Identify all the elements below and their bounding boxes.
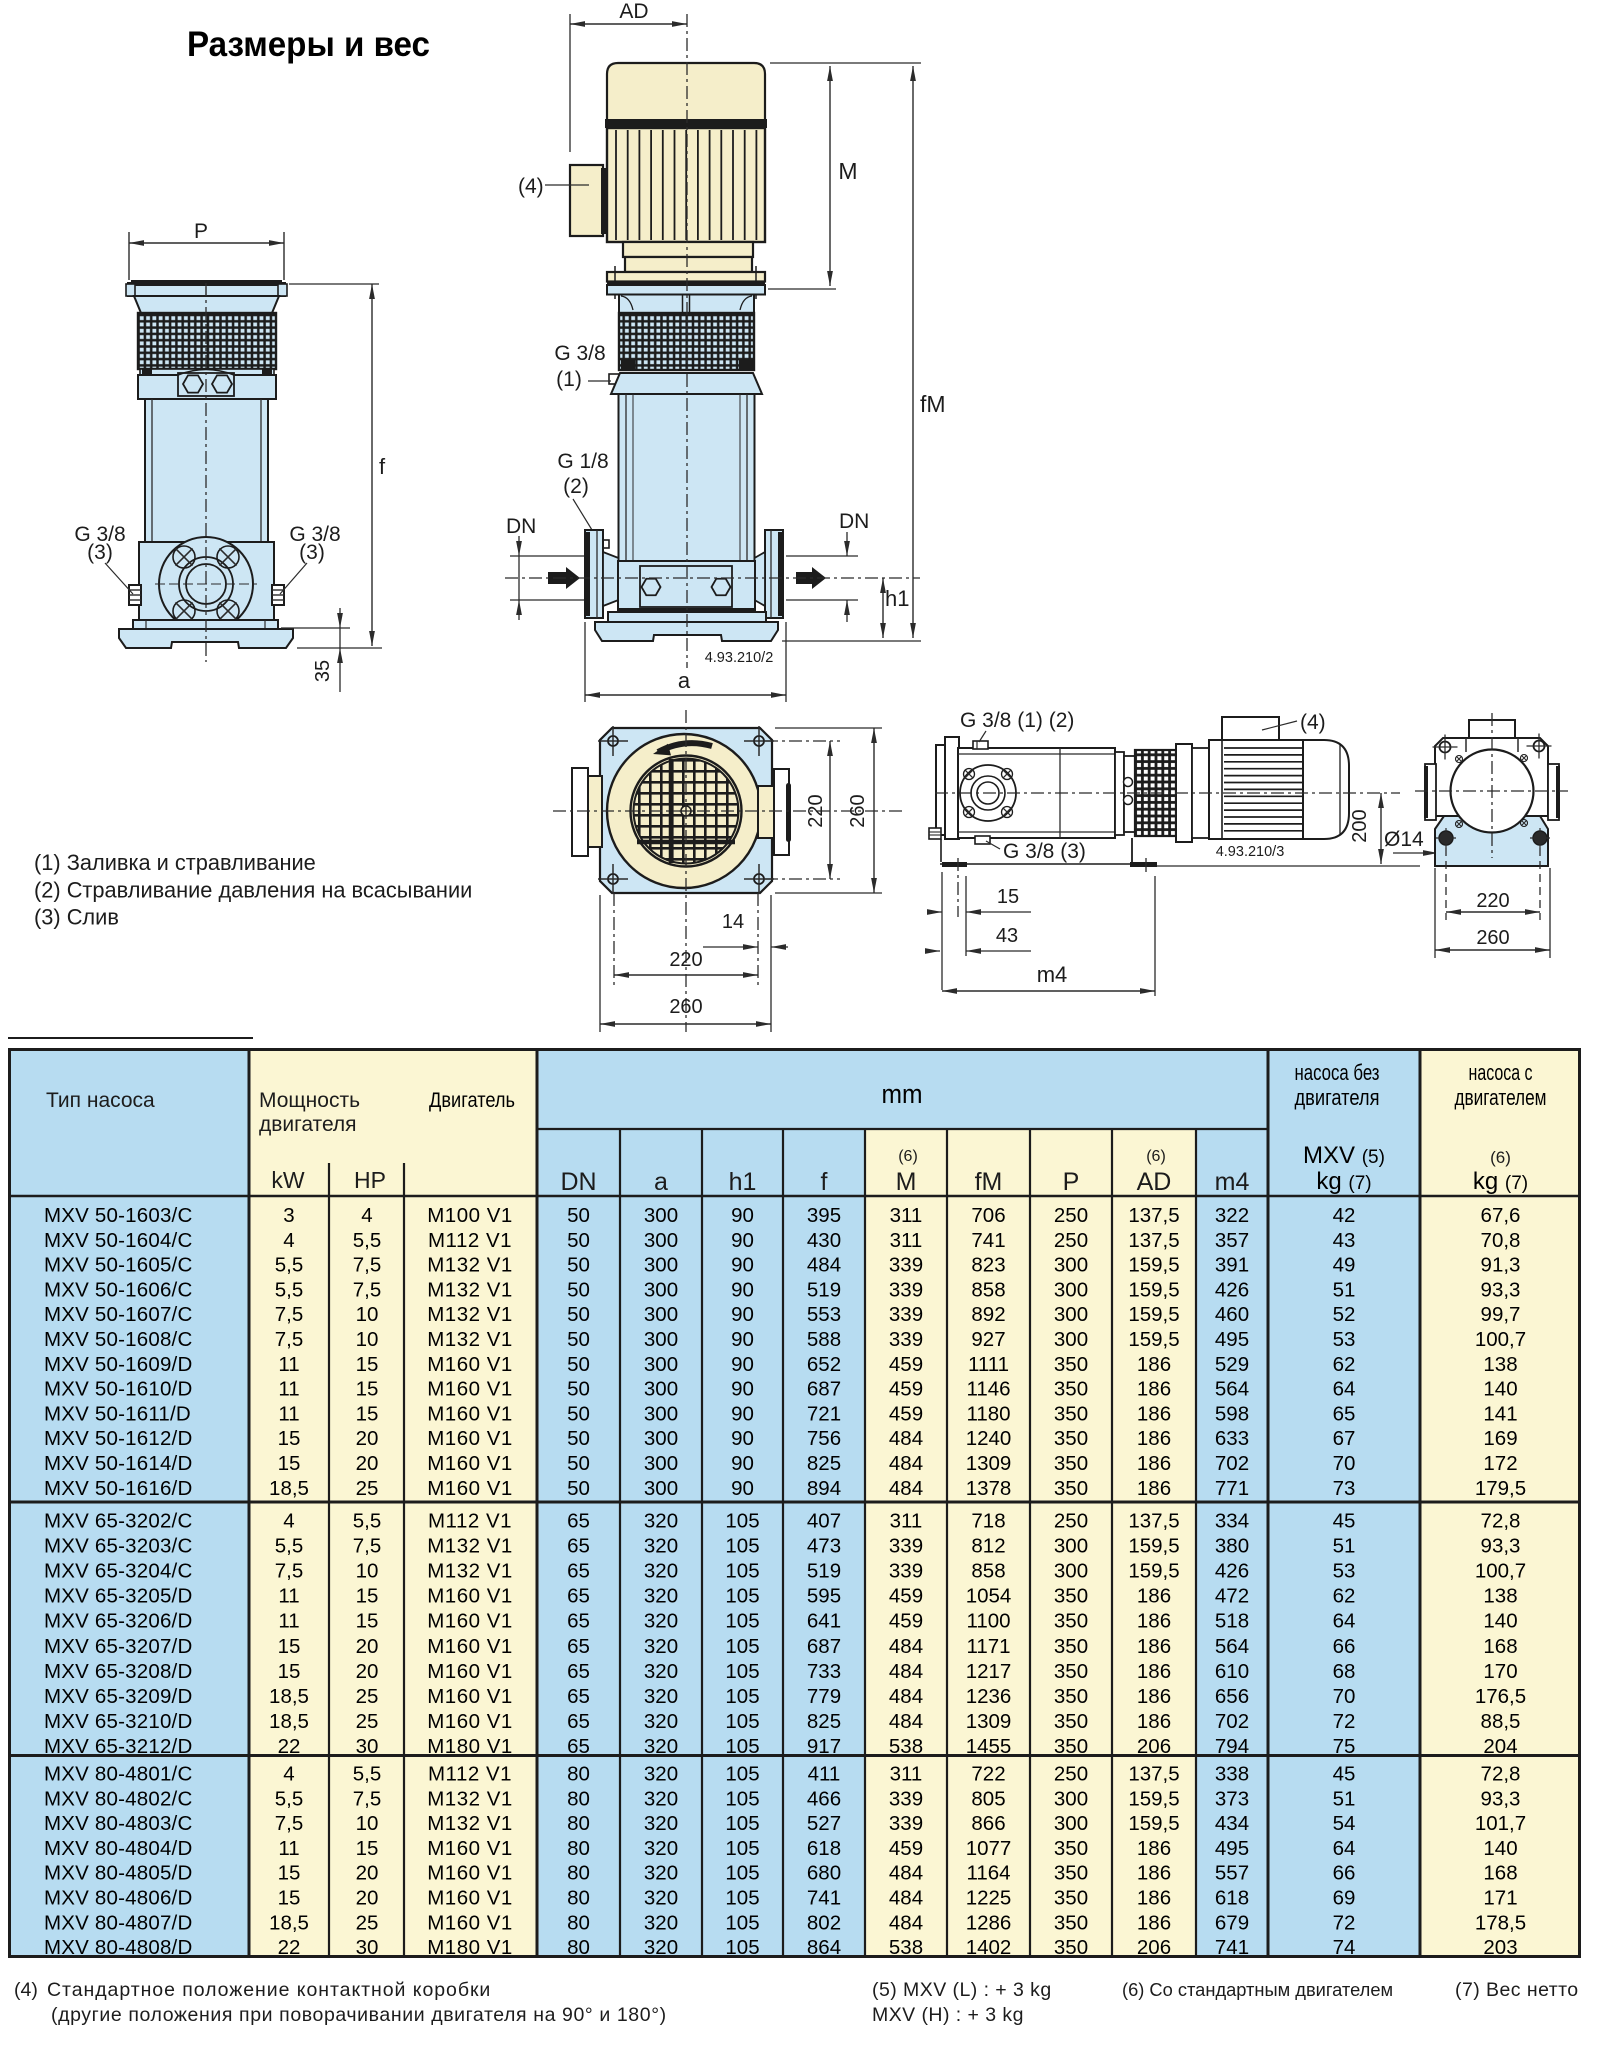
svg-text:7,5: 7,5 <box>353 1278 382 1301</box>
svg-text:M160 V1: M160 V1 <box>427 1427 513 1450</box>
svg-text:m4: m4 <box>1037 962 1068 987</box>
svg-text:7,5: 7,5 <box>275 1328 304 1351</box>
svg-text:20: 20 <box>356 1862 379 1885</box>
svg-text:67,6: 67,6 <box>1481 1204 1521 1227</box>
svg-text:50: 50 <box>567 1303 590 1326</box>
svg-text:(другие положения при поворачи: (другие положения при поворачивании двиг… <box>51 2004 667 2026</box>
svg-text:300: 300 <box>644 1278 678 1301</box>
svg-text:260: 260 <box>669 996 702 1018</box>
svg-text:65: 65 <box>567 1560 590 1583</box>
svg-text:320: 320 <box>644 1862 678 1885</box>
svg-text:M160 V1: M160 V1 <box>427 1911 513 1934</box>
svg-text:484: 484 <box>889 1635 923 1658</box>
svg-text:595: 595 <box>807 1585 841 1608</box>
svg-text:687: 687 <box>807 1635 841 1658</box>
svg-text:300: 300 <box>644 1402 678 1425</box>
svg-text:186: 186 <box>1137 1635 1171 1658</box>
svg-text:(5) MXV (L) : + 3 kg: (5) MXV (L) : + 3 kg <box>872 1979 1052 2001</box>
svg-text:519: 519 <box>807 1560 841 1583</box>
svg-text:459: 459 <box>889 1837 923 1860</box>
svg-text:1309: 1309 <box>966 1710 1012 1733</box>
svg-text:250: 250 <box>1054 1763 1088 1786</box>
svg-text:395: 395 <box>807 1204 841 1227</box>
svg-text:426: 426 <box>1215 1278 1249 1301</box>
svg-text:339: 339 <box>889 1812 923 1835</box>
svg-text:300: 300 <box>1054 1328 1088 1351</box>
svg-text:91,3: 91,3 <box>1481 1254 1521 1277</box>
svg-text:15: 15 <box>997 886 1019 908</box>
svg-text:10: 10 <box>356 1328 379 1351</box>
svg-text:320: 320 <box>644 1610 678 1633</box>
svg-text:MXV 80-4805/D: MXV 80-4805/D <box>44 1862 192 1885</box>
svg-text:(2): (2) <box>563 475 589 498</box>
svg-text:186: 186 <box>1137 1862 1171 1885</box>
svg-text:MXV 65-3207/D: MXV 65-3207/D <box>44 1635 192 1658</box>
svg-text:MXV 80-4802/C: MXV 80-4802/C <box>44 1787 192 1810</box>
svg-text:MXV 50-1611/D: MXV 50-1611/D <box>44 1402 191 1425</box>
svg-text:460: 460 <box>1215 1303 1249 1326</box>
svg-text:350: 350 <box>1054 1585 1088 1608</box>
svg-text:65: 65 <box>567 1535 590 1558</box>
svg-text:MXV 65-3205/D: MXV 65-3205/D <box>44 1585 192 1608</box>
svg-text:65: 65 <box>567 1610 590 1633</box>
svg-text:373: 373 <box>1215 1787 1249 1810</box>
svg-text:MXV 65-3202/C: MXV 65-3202/C <box>44 1510 192 1533</box>
svg-text:M132 V1: M132 V1 <box>427 1787 513 1810</box>
svg-text:300: 300 <box>644 1378 678 1401</box>
svg-text:двигателя: двигателя <box>1295 1085 1380 1110</box>
svg-text:339: 339 <box>889 1303 923 1326</box>
svg-text:339: 339 <box>889 1254 923 1277</box>
svg-text:M112 V1: M112 V1 <box>428 1229 512 1252</box>
svg-text:656: 656 <box>1215 1685 1249 1708</box>
svg-text:20: 20 <box>356 1427 379 1450</box>
svg-text:90: 90 <box>731 1477 754 1500</box>
svg-text:300: 300 <box>1054 1560 1088 1583</box>
svg-text:170: 170 <box>1483 1660 1517 1683</box>
svg-text:(3): (3) <box>87 541 113 564</box>
svg-text:45: 45 <box>1333 1763 1356 1786</box>
svg-text:825: 825 <box>807 1710 841 1733</box>
svg-text:858: 858 <box>971 1278 1005 1301</box>
svg-text:176,5: 176,5 <box>1475 1685 1526 1708</box>
svg-text:5,5: 5,5 <box>353 1510 382 1533</box>
svg-text:MXV 65-3210/D: MXV 65-3210/D <box>44 1710 192 1733</box>
svg-text:866: 866 <box>971 1812 1005 1835</box>
svg-text:Стандартное положение контактн: Стандартное положение контактной коробки <box>47 1979 491 2001</box>
svg-text:186: 186 <box>1137 1887 1171 1910</box>
svg-text:M: M <box>838 158 857 184</box>
svg-text:105: 105 <box>725 1510 759 1533</box>
svg-text:(3): (3) <box>299 541 325 564</box>
svg-text:72,8: 72,8 <box>1481 1763 1521 1786</box>
svg-text:598: 598 <box>1215 1402 1249 1425</box>
svg-text:434: 434 <box>1215 1812 1249 1835</box>
svg-text:M160 V1: M160 V1 <box>427 1610 513 1633</box>
svg-text:67: 67 <box>1333 1427 1356 1450</box>
svg-text:1309: 1309 <box>966 1452 1012 1475</box>
svg-text:MXV 50-1603/C: MXV 50-1603/C <box>44 1204 192 1227</box>
svg-text:137,5: 137,5 <box>1128 1229 1179 1252</box>
svg-text:350: 350 <box>1054 1710 1088 1733</box>
svg-text:459: 459 <box>889 1378 923 1401</box>
svg-text:20: 20 <box>356 1635 379 1658</box>
svg-text:15: 15 <box>356 1837 379 1860</box>
svg-text:двигателя: двигателя <box>259 1113 357 1136</box>
svg-text:802: 802 <box>807 1911 841 1934</box>
svg-text:338: 338 <box>1215 1763 1249 1786</box>
svg-text:(6): (6) <box>898 1148 918 1165</box>
svg-text:300: 300 <box>644 1427 678 1450</box>
svg-text:1146: 1146 <box>966 1378 1010 1401</box>
svg-text:50: 50 <box>567 1229 590 1252</box>
svg-text:472: 472 <box>1215 1585 1249 1608</box>
svg-text:a: a <box>654 1168 668 1196</box>
svg-text:MXV 50-1608/C: MXV 50-1608/C <box>44 1328 192 1351</box>
svg-text:(2) Стравливание давления на в: (2) Стравливание давления на всасывании <box>34 877 472 902</box>
svg-text:насоса с: насоса с <box>1469 1060 1533 1085</box>
svg-text:51: 51 <box>1333 1535 1356 1558</box>
svg-text:MXV 50-1605/C: MXV 50-1605/C <box>44 1254 192 1277</box>
svg-text:339: 339 <box>889 1535 923 1558</box>
svg-text:466: 466 <box>807 1787 841 1810</box>
svg-text:300: 300 <box>644 1303 678 1326</box>
svg-text:15: 15 <box>278 1427 301 1450</box>
svg-text:101,7: 101,7 <box>1475 1812 1526 1835</box>
svg-text:(4): (4) <box>14 1979 38 2001</box>
svg-text:90: 90 <box>731 1204 754 1227</box>
svg-text:7,5: 7,5 <box>353 1535 382 1558</box>
svg-text:M160 V1: M160 V1 <box>427 1887 513 1910</box>
svg-text:823: 823 <box>971 1254 1005 1277</box>
svg-text:618: 618 <box>807 1837 841 1860</box>
svg-text:18,5: 18,5 <box>269 1710 309 1733</box>
svg-text:484: 484 <box>889 1427 923 1450</box>
svg-text:186: 186 <box>1137 1660 1171 1683</box>
svg-text:320: 320 <box>644 1710 678 1733</box>
svg-text:52: 52 <box>1333 1303 1356 1326</box>
svg-text:220: 220 <box>805 794 827 827</box>
svg-text:80: 80 <box>567 1862 590 1885</box>
svg-text:159,5: 159,5 <box>1128 1278 1179 1301</box>
svg-text:fM: fM <box>920 391 946 417</box>
svg-text:M160 V1: M160 V1 <box>427 1585 513 1608</box>
svg-text:G 1/8: G 1/8 <box>557 450 608 473</box>
svg-text:138: 138 <box>1483 1585 1517 1608</box>
svg-text:50: 50 <box>567 1402 590 1425</box>
svg-text:105: 105 <box>725 1585 759 1608</box>
svg-text:721: 721 <box>807 1402 841 1425</box>
svg-text:300: 300 <box>644 1477 678 1500</box>
svg-text:11: 11 <box>278 1585 299 1608</box>
svg-text:90: 90 <box>731 1353 754 1376</box>
svg-text:MXV 80-4803/C: MXV 80-4803/C <box>44 1812 192 1835</box>
svg-text:350: 350 <box>1054 1452 1088 1475</box>
svg-text:722: 722 <box>971 1763 1005 1786</box>
svg-text:805: 805 <box>971 1787 1005 1810</box>
svg-text:339: 339 <box>889 1328 923 1351</box>
svg-text:812: 812 <box>971 1535 1005 1558</box>
svg-text:1054: 1054 <box>966 1585 1012 1608</box>
svg-text:M132 V1: M132 V1 <box>427 1254 513 1277</box>
svg-text:459: 459 <box>889 1610 923 1633</box>
svg-text:66: 66 <box>1333 1635 1356 1658</box>
svg-text:43: 43 <box>996 925 1018 947</box>
svg-text:250: 250 <box>1054 1229 1088 1252</box>
svg-text:7,5: 7,5 <box>275 1812 304 1835</box>
svg-text:350: 350 <box>1054 1837 1088 1860</box>
svg-text:1100: 1100 <box>966 1610 1010 1633</box>
svg-text:G 3/8 (1) (2): G 3/8 (1) (2) <box>960 709 1074 732</box>
svg-text:20: 20 <box>356 1452 379 1475</box>
svg-text:(6) Со стандартным двигателем: (6) Со стандартным двигателем <box>1122 1979 1393 2000</box>
svg-text:756: 756 <box>807 1427 841 1450</box>
svg-text:300: 300 <box>644 1353 678 1376</box>
svg-text:484: 484 <box>889 1862 923 1885</box>
svg-text:25: 25 <box>356 1477 379 1500</box>
svg-text:Тип насоса: Тип насоса <box>46 1089 155 1112</box>
svg-text:339: 339 <box>889 1278 923 1301</box>
svg-text:320: 320 <box>644 1560 678 1583</box>
svg-text:h1: h1 <box>885 586 909 611</box>
svg-text:186: 186 <box>1137 1452 1171 1475</box>
svg-text:300: 300 <box>1054 1278 1088 1301</box>
svg-text:186: 186 <box>1137 1402 1171 1425</box>
svg-text:171: 171 <box>1483 1887 1517 1910</box>
svg-text:65: 65 <box>567 1710 590 1733</box>
svg-text:66: 66 <box>1333 1862 1356 1885</box>
svg-text:70,8: 70,8 <box>1481 1229 1521 1252</box>
svg-text:484: 484 <box>889 1452 923 1475</box>
svg-text:MXV 50-1616/D: MXV 50-1616/D <box>44 1477 192 1500</box>
svg-text:M160 V1: M160 V1 <box>427 1635 513 1658</box>
svg-text:105: 105 <box>725 1887 759 1910</box>
svg-text:M132 V1: M132 V1 <box>427 1560 513 1583</box>
svg-text:484: 484 <box>889 1710 923 1733</box>
svg-text:426: 426 <box>1215 1560 1249 1583</box>
svg-text:350: 350 <box>1054 1635 1088 1658</box>
svg-text:350: 350 <box>1054 1685 1088 1708</box>
svg-text:168: 168 <box>1483 1635 1517 1658</box>
svg-text:MXV 50-1612/D: MXV 50-1612/D <box>44 1427 192 1450</box>
svg-text:702: 702 <box>1215 1452 1249 1475</box>
svg-text:168: 168 <box>1483 1862 1517 1885</box>
svg-text:339: 339 <box>889 1787 923 1810</box>
svg-text:186: 186 <box>1137 1710 1171 1733</box>
svg-text:300: 300 <box>644 1254 678 1277</box>
svg-text:484: 484 <box>889 1887 923 1910</box>
svg-text:15: 15 <box>278 1660 301 1683</box>
svg-text:18,5: 18,5 <box>269 1685 309 1708</box>
svg-text:50: 50 <box>567 1254 590 1277</box>
svg-text:105: 105 <box>725 1535 759 1558</box>
svg-text:4: 4 <box>361 1204 372 1227</box>
svg-text:80: 80 <box>567 1911 590 1934</box>
svg-text:5,5: 5,5 <box>353 1229 382 1252</box>
svg-text:300: 300 <box>644 1328 678 1351</box>
svg-text:391: 391 <box>1215 1254 1249 1277</box>
svg-text:186: 186 <box>1137 1911 1171 1934</box>
svg-text:Двигатель: Двигатель <box>429 1089 515 1112</box>
svg-text:679: 679 <box>1215 1911 1249 1934</box>
svg-text:50: 50 <box>567 1204 590 1227</box>
svg-text:(1) Заливка и стравливание: (1) Заливка и стравливание <box>34 850 316 875</box>
svg-text:137,5: 137,5 <box>1128 1763 1179 1786</box>
svg-text:159,5: 159,5 <box>1128 1303 1179 1326</box>
svg-text:MXV 50-1606/C: MXV 50-1606/C <box>44 1278 192 1301</box>
svg-text:350: 350 <box>1054 1887 1088 1910</box>
svg-text:339: 339 <box>889 1560 923 1583</box>
svg-text:14: 14 <box>722 911 744 933</box>
svg-text:(4): (4) <box>1300 711 1326 734</box>
svg-text:741: 741 <box>807 1887 841 1910</box>
svg-text:DN: DN <box>560 1168 596 1196</box>
svg-text:105: 105 <box>725 1685 759 1708</box>
svg-text:насоса без: насоса без <box>1295 1060 1380 1085</box>
svg-text:186: 186 <box>1137 1427 1171 1450</box>
svg-text:105: 105 <box>725 1837 759 1860</box>
svg-text:159,5: 159,5 <box>1128 1787 1179 1810</box>
svg-text:1286: 1286 <box>966 1911 1012 1934</box>
svg-text:220: 220 <box>669 949 702 971</box>
svg-text:172: 172 <box>1483 1452 1517 1475</box>
svg-text:557: 557 <box>1215 1862 1249 1885</box>
svg-text:892: 892 <box>971 1303 1005 1326</box>
svg-text:65: 65 <box>567 1660 590 1683</box>
svg-text:495: 495 <box>1215 1837 1249 1860</box>
svg-text:MXV 80-4807/D: MXV 80-4807/D <box>44 1911 192 1934</box>
svg-text:45: 45 <box>1333 1510 1356 1533</box>
svg-text:10: 10 <box>356 1303 379 1326</box>
svg-text:5,5: 5,5 <box>275 1254 304 1277</box>
svg-text:P: P <box>1063 1168 1080 1196</box>
svg-text:15: 15 <box>278 1452 301 1475</box>
svg-text:MXV 65-3206/D: MXV 65-3206/D <box>44 1610 192 1633</box>
svg-text:18,5: 18,5 <box>269 1911 309 1934</box>
svg-text:72,8: 72,8 <box>1481 1510 1521 1533</box>
svg-text:10: 10 <box>356 1812 379 1835</box>
svg-text:M160 V1: M160 V1 <box>427 1452 513 1475</box>
svg-text:M100 V1: M100 V1 <box>427 1204 513 1227</box>
svg-text:43: 43 <box>1333 1229 1356 1252</box>
svg-text:1217: 1217 <box>966 1660 1012 1683</box>
svg-text:741: 741 <box>971 1229 1005 1252</box>
svg-text:186: 186 <box>1137 1378 1171 1401</box>
svg-text:(6): (6) <box>1490 1148 1511 1167</box>
svg-text:687: 687 <box>807 1378 841 1401</box>
svg-text:1111: 1111 <box>968 1353 1009 1376</box>
svg-text:64: 64 <box>1333 1378 1356 1401</box>
svg-text:25: 25 <box>356 1685 379 1708</box>
svg-text:72: 72 <box>1333 1911 1356 1934</box>
svg-text:1180: 1180 <box>966 1402 1010 1425</box>
svg-text:50: 50 <box>567 1378 590 1401</box>
svg-text:62: 62 <box>1333 1353 1356 1376</box>
svg-text:320: 320 <box>644 1660 678 1683</box>
svg-text:484: 484 <box>889 1660 923 1683</box>
svg-text:93,3: 93,3 <box>1481 1787 1521 1810</box>
svg-text:564: 564 <box>1215 1378 1249 1401</box>
svg-text:320: 320 <box>644 1812 678 1835</box>
svg-text:718: 718 <box>971 1510 1005 1533</box>
svg-text:P: P <box>194 220 208 243</box>
svg-text:5,5: 5,5 <box>275 1278 304 1301</box>
svg-text:80: 80 <box>567 1887 590 1910</box>
svg-text:(1): (1) <box>556 368 582 391</box>
svg-text:68: 68 <box>1333 1660 1356 1683</box>
svg-text:65: 65 <box>1333 1402 1356 1425</box>
svg-text:7,5: 7,5 <box>353 1254 382 1277</box>
svg-text:186: 186 <box>1137 1610 1171 1633</box>
svg-text:42: 42 <box>1333 1204 1356 1227</box>
svg-text:AD: AD <box>1137 1168 1172 1196</box>
svg-text:357: 357 <box>1215 1229 1249 1252</box>
svg-text:65: 65 <box>567 1685 590 1708</box>
svg-text:140: 140 <box>1483 1837 1517 1860</box>
svg-text:M132 V1: M132 V1 <box>427 1328 513 1351</box>
svg-text:M160 V1: M160 V1 <box>427 1378 513 1401</box>
svg-text:90: 90 <box>731 1328 754 1351</box>
svg-text:4: 4 <box>283 1763 294 1786</box>
svg-text:MXV 50-1614/D: MXV 50-1614/D <box>44 1452 192 1475</box>
svg-text:20: 20 <box>356 1660 379 1683</box>
svg-text:179,5: 179,5 <box>1475 1477 1526 1500</box>
svg-text:300: 300 <box>644 1452 678 1475</box>
svg-text:49: 49 <box>1333 1254 1356 1277</box>
svg-text:894: 894 <box>807 1477 841 1500</box>
svg-text:320: 320 <box>644 1787 678 1810</box>
svg-text:618: 618 <box>1215 1887 1249 1910</box>
svg-text:MXV 80-4801/C: MXV 80-4801/C <box>44 1763 192 1786</box>
svg-text:1171: 1171 <box>966 1635 1010 1658</box>
svg-text:186: 186 <box>1137 1685 1171 1708</box>
svg-text:7,5: 7,5 <box>275 1560 304 1583</box>
svg-text:169: 169 <box>1483 1427 1517 1450</box>
svg-text:11: 11 <box>278 1837 299 1860</box>
svg-text:105: 105 <box>725 1812 759 1835</box>
svg-text:320: 320 <box>644 1685 678 1708</box>
svg-text:72: 72 <box>1333 1710 1356 1733</box>
svg-text:kg (7): kg (7) <box>1473 1168 1528 1195</box>
svg-text:(7) Вес нетто: (7) Вес нетто <box>1455 1979 1579 2001</box>
svg-text:320: 320 <box>644 1510 678 1533</box>
svg-text:G 3/8 (3): G 3/8 (3) <box>1003 840 1086 863</box>
svg-text:50: 50 <box>567 1278 590 1301</box>
svg-text:fM: fM <box>975 1168 1003 1196</box>
svg-text:(3) Слив: (3) Слив <box>34 905 119 930</box>
svg-text:70: 70 <box>1333 1685 1356 1708</box>
svg-text:105: 105 <box>725 1610 759 1633</box>
svg-text:350: 350 <box>1054 1477 1088 1500</box>
svg-text:250: 250 <box>1054 1204 1088 1227</box>
svg-text:M160 V1: M160 V1 <box>427 1685 513 1708</box>
svg-text:320: 320 <box>644 1763 678 1786</box>
svg-text:M: M <box>896 1168 917 1196</box>
svg-text:588: 588 <box>807 1328 841 1351</box>
svg-text:300: 300 <box>1054 1787 1088 1810</box>
svg-text:M112 V1: M112 V1 <box>428 1763 512 1786</box>
svg-text:459: 459 <box>889 1402 923 1425</box>
svg-text:159,5: 159,5 <box>1128 1812 1179 1835</box>
svg-text:350: 350 <box>1054 1911 1088 1934</box>
svg-text:141: 141 <box>1483 1402 1517 1425</box>
svg-text:825: 825 <box>807 1452 841 1475</box>
svg-text:105: 105 <box>725 1862 759 1885</box>
svg-text:484: 484 <box>889 1685 923 1708</box>
svg-text:m4: m4 <box>1215 1168 1250 1196</box>
svg-text:186: 186 <box>1137 1353 1171 1376</box>
svg-text:15: 15 <box>278 1887 301 1910</box>
